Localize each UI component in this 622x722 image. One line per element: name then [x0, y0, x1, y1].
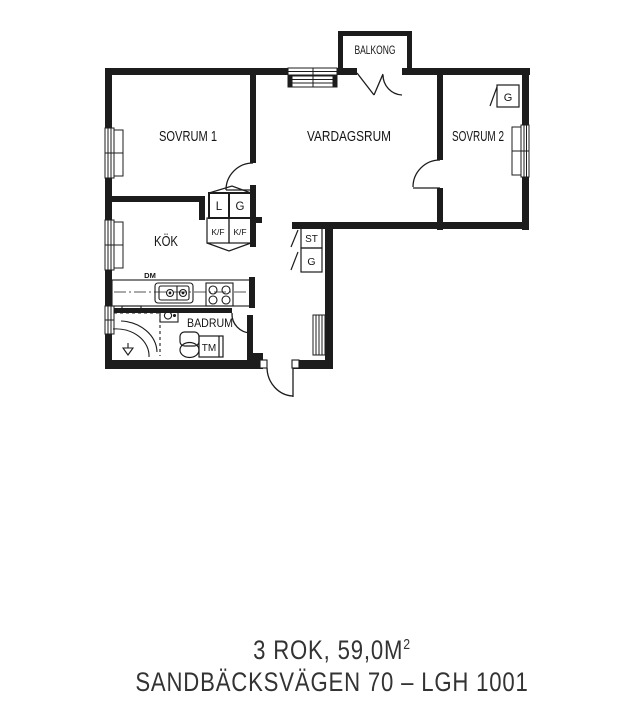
wall-left-1 — [105, 68, 112, 128]
wall-left-2 — [105, 178, 112, 220]
balcony-wall-right — [407, 31, 412, 73]
wall-bedroom1-kitchen — [112, 196, 203, 202]
floor-drain-icon — [123, 343, 133, 355]
door-bedroom1 — [226, 163, 253, 190]
footer-area-text: 3 ROK, 59,0M — [253, 635, 403, 665]
kitchen-fixtures — [112, 280, 250, 306]
wall-living-bedroom2-b — [437, 188, 443, 230]
wall-middle-long — [292, 222, 528, 229]
wall-right-1 — [522, 68, 529, 125]
kitchen-wardrobe-label: G — [236, 201, 245, 213]
floor-plan-drawing: BALKONG SOVRUM 1 VARDAGSRUM SOVRUM 2 KÖK… — [0, 0, 622, 722]
window-kitchen — [105, 220, 123, 270]
footer-area-superscript: 2 — [403, 636, 411, 653]
fridge-right-label: K/F — [233, 227, 246, 237]
washing-machine-label: TM — [202, 343, 216, 354]
wall-top-left — [105, 68, 288, 75]
balcony-wall-top — [338, 31, 412, 36]
bedroom2-wardrobe-label: G — [504, 92, 513, 104]
window-bedroom2 — [512, 125, 529, 177]
balcony-wall-left — [338, 31, 343, 73]
footer-address-line: SANDBÄCKSVÄGEN 70 – LGH 1001 — [94, 666, 570, 698]
stove — [206, 283, 233, 306]
footer: 3 ROK, 59,0M2 SANDBÄCKSVÄGEN 70 – LGH 10… — [94, 634, 570, 698]
fridge-left-label: K/F — [211, 227, 224, 237]
balcony-door-jamb-right — [402, 68, 407, 75]
window-bathroom — [105, 306, 114, 334]
hall-radiator — [313, 315, 325, 355]
wall-left-3 — [105, 270, 112, 306]
bathroom-label: BADRUM — [187, 316, 233, 330]
wall-top-right — [402, 68, 530, 75]
living-room-label: VARDAGSRUM — [307, 129, 391, 145]
wall-hall-right — [325, 229, 333, 369]
balcony-label: BALKONG — [355, 45, 396, 57]
bedroom2-label: SOVRUM 2 — [452, 129, 504, 145]
kitchen-label: KÖK — [154, 232, 178, 250]
linen-closet-label: L — [216, 201, 223, 213]
toilet — [180, 332, 199, 358]
wall-living-bedroom2-a — [437, 75, 443, 160]
wall-bedroom1-living-a — [250, 75, 256, 163]
balcony-door-jamb-left — [352, 68, 357, 75]
door-entry — [260, 360, 299, 397]
bedroom1-label: SOVRUM 1 — [159, 129, 217, 145]
window-living-room — [288, 68, 337, 87]
wall-right-2 — [522, 177, 529, 230]
footer-area-line: 3 ROK, 59,0M2 — [94, 634, 570, 666]
window-bedroom1 — [105, 128, 123, 178]
wall-hall-stub — [256, 217, 262, 223]
door-bedroom2 — [413, 160, 440, 188]
kitchen-sink — [155, 283, 193, 303]
wall-bathroom-right — [247, 315, 253, 360]
dishwasher-label: DM — [144, 271, 156, 280]
cleaning-closet-label: ST — [305, 234, 318, 245]
door-balcony — [357, 73, 402, 95]
wall-bottom-left — [105, 360, 255, 369]
floor-plan-page: BALKONG SOVRUM 1 VARDAGSRUM SOVRUM 2 KÖK… — [0, 0, 622, 722]
wall-kitchen-step — [199, 196, 205, 220]
hall-wardrobe-label: G — [307, 256, 315, 268]
shower — [113, 313, 160, 357]
